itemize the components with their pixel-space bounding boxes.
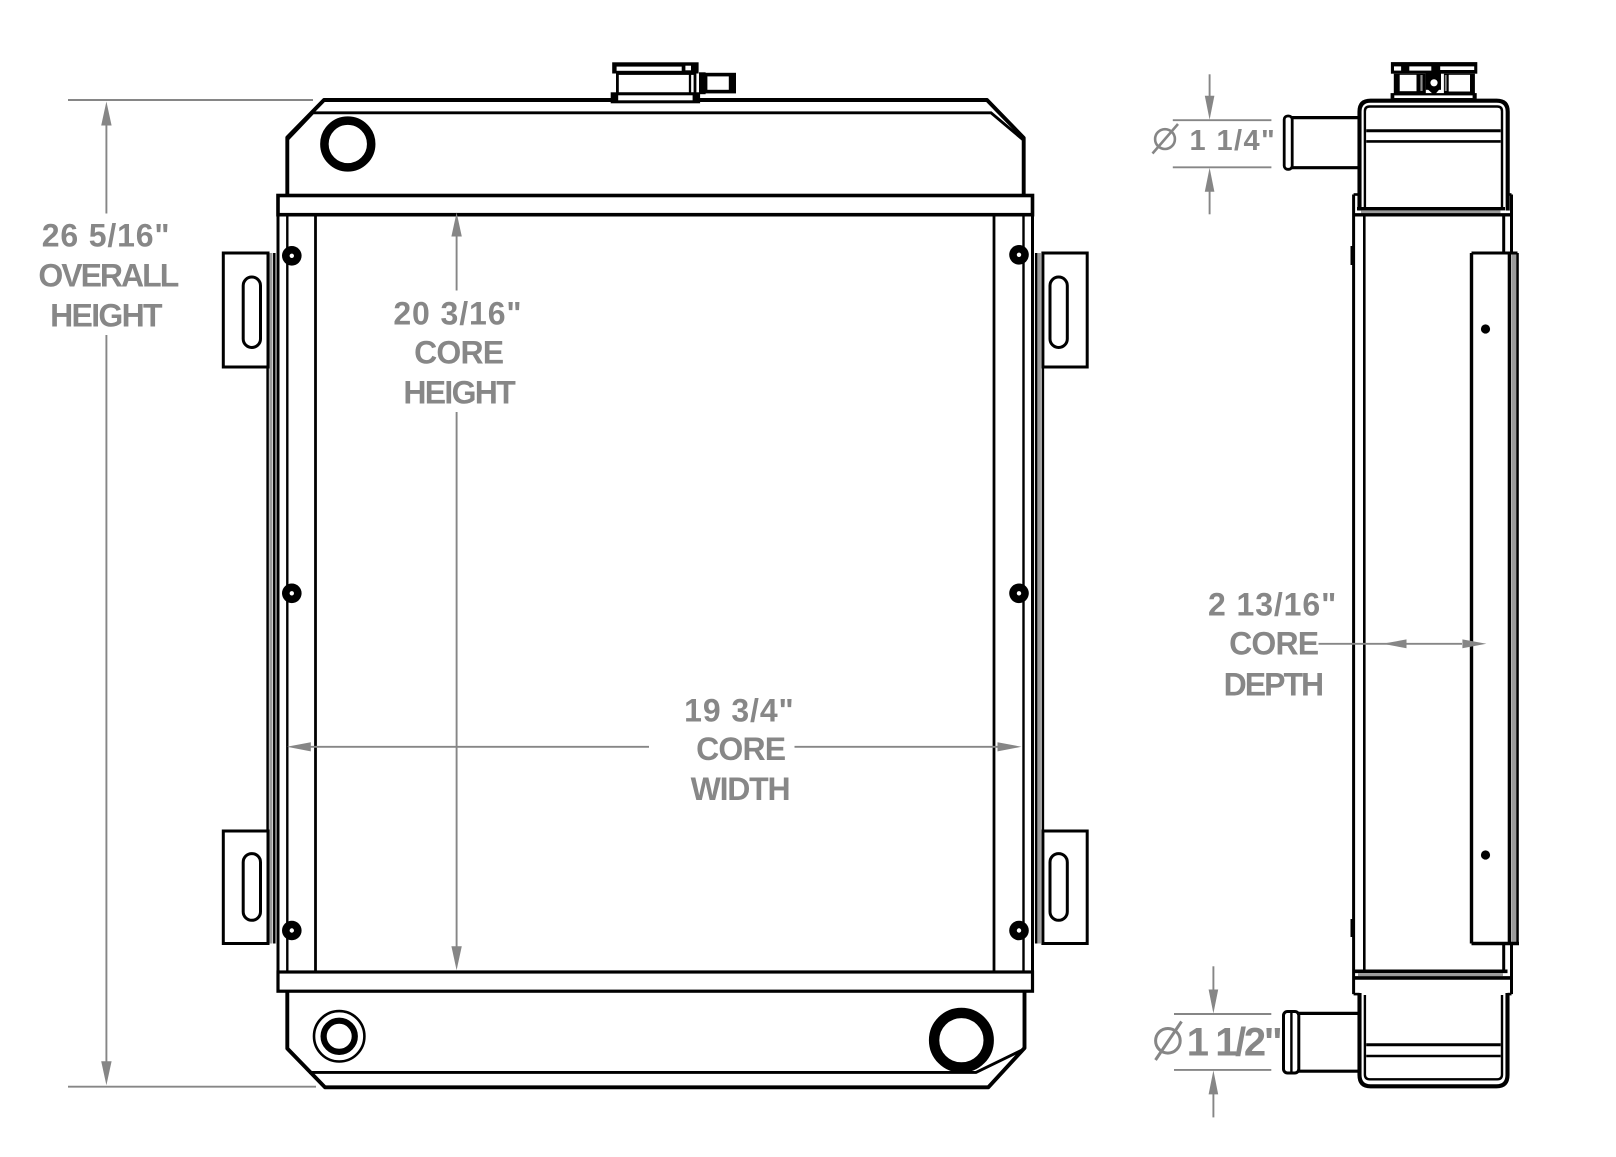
svg-text:WIDTH: WIDTH	[691, 771, 790, 807]
svg-text:DEPTH: DEPTH	[1224, 667, 1322, 703]
svg-text:HEIGHT: HEIGHT	[403, 375, 516, 411]
svg-text:20 3/16": 20 3/16"	[393, 296, 522, 332]
svg-text:HEIGHT: HEIGHT	[50, 298, 163, 334]
svg-text:1 1/2": 1 1/2"	[1187, 1021, 1281, 1065]
svg-text:26 5/16": 26 5/16"	[42, 218, 171, 254]
svg-text:CORE: CORE	[696, 731, 786, 767]
svg-text:CORE: CORE	[414, 335, 504, 371]
svg-text:19 3/4": 19 3/4"	[684, 693, 794, 729]
svg-text:OVERALL: OVERALL	[38, 257, 178, 293]
svg-text:1 1/4": 1 1/4"	[1189, 125, 1276, 157]
svg-text:CORE: CORE	[1229, 625, 1319, 661]
svg-text:2 13/16": 2 13/16"	[1208, 587, 1337, 623]
